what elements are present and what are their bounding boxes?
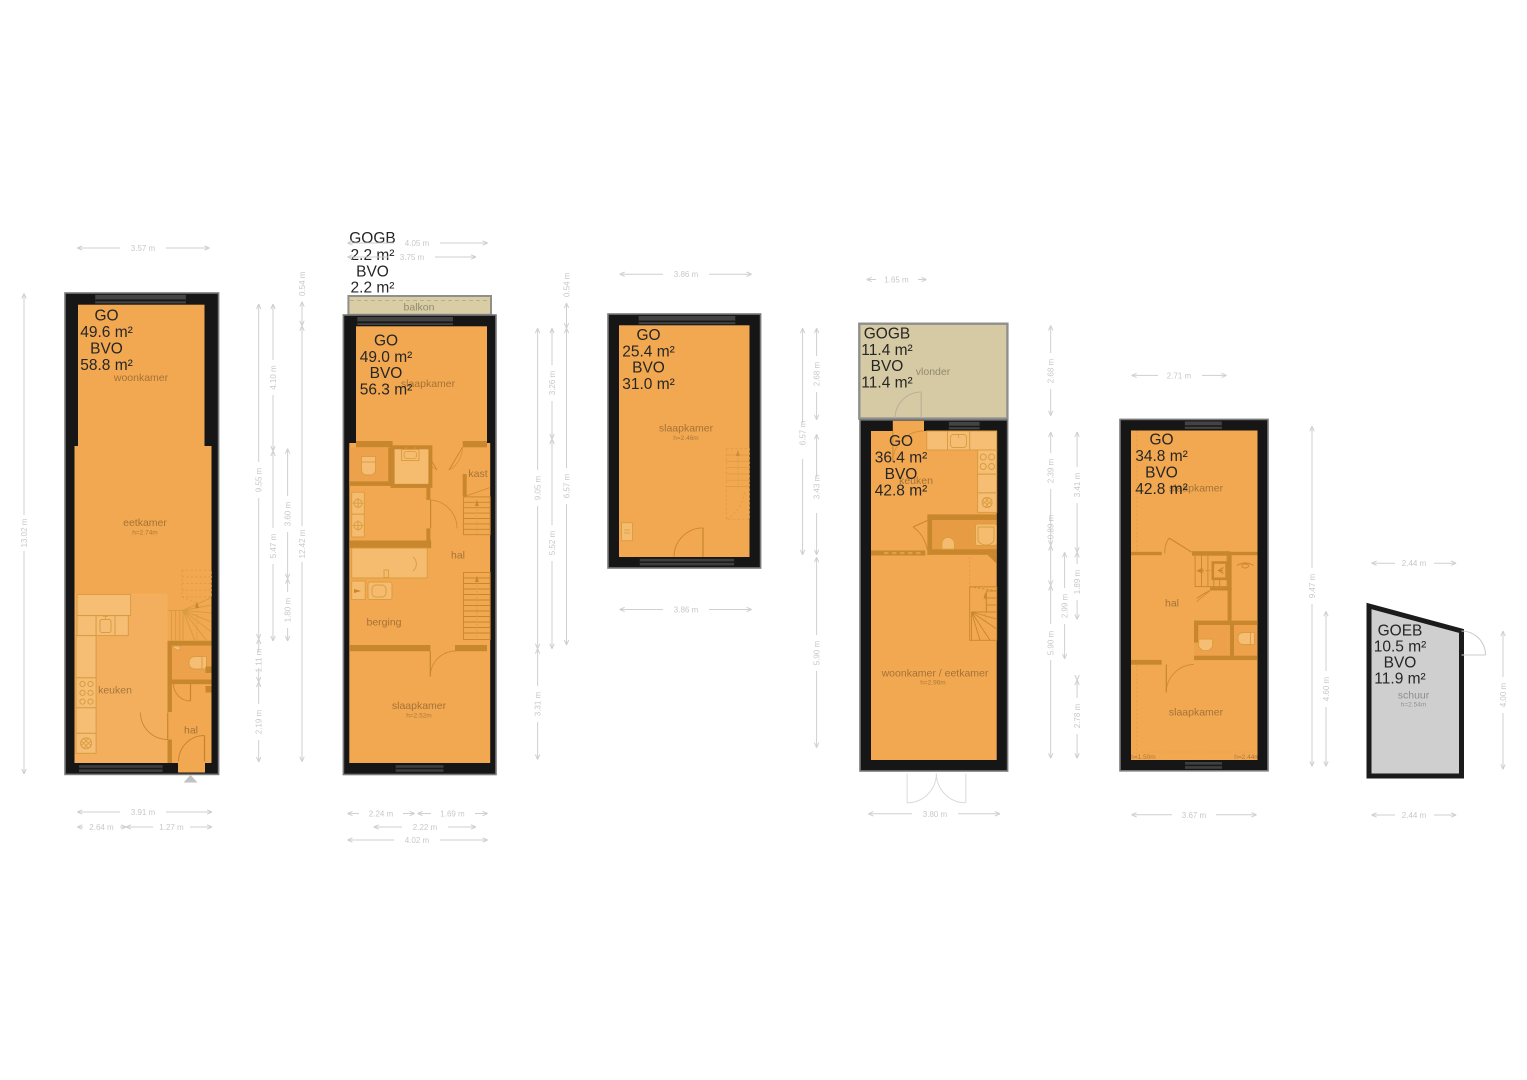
svg-text:0.89 m: 0.89 m	[1047, 514, 1056, 539]
svg-text:3.26 m: 3.26 m	[548, 370, 557, 395]
svg-text:2.24 m: 2.24 m	[369, 810, 394, 819]
svg-text:2.2 m²: 2.2 m²	[351, 280, 395, 297]
svg-text:6.57 m: 6.57 m	[563, 473, 572, 498]
svg-text:2.71 m: 2.71 m	[1167, 371, 1192, 380]
svg-text:eetkamer: eetkamer	[123, 517, 167, 529]
svg-text:h=2.54m: h=2.54m	[1401, 702, 1426, 709]
svg-text:5.90 m: 5.90 m	[1047, 630, 1056, 655]
svg-text:9.55 m: 9.55 m	[255, 467, 264, 492]
svg-text:hal: hal	[184, 725, 198, 737]
svg-text:BVO: BVO	[370, 365, 403, 382]
svg-text:0.54 m: 0.54 m	[563, 272, 572, 297]
svg-text:schuur: schuur	[1398, 690, 1430, 702]
svg-text:1.80 m: 1.80 m	[284, 597, 293, 622]
svg-text:10.5 m²: 10.5 m²	[1374, 639, 1427, 656]
svg-text:BVO: BVO	[1384, 655, 1417, 672]
svg-text:slaapkamer: slaapkamer	[1169, 483, 1224, 495]
svg-text:h=2.96m: h=2.96m	[920, 680, 945, 687]
svg-text:1.27 m: 1.27 m	[159, 823, 184, 832]
svg-text:1.69 m: 1.69 m	[440, 810, 465, 819]
svg-text:3.86 m: 3.86 m	[674, 270, 699, 279]
svg-text:slaapkamer: slaapkamer	[401, 378, 456, 390]
svg-text:12.42 m: 12.42 m	[298, 529, 307, 558]
svg-text:3.67 m: 3.67 m	[1182, 811, 1207, 820]
svg-text:kast: kast	[468, 468, 487, 480]
svg-text:2.19 m: 2.19 m	[255, 709, 264, 734]
svg-text:5.90 m: 5.90 m	[813, 640, 822, 665]
svg-text:2.68 m: 2.68 m	[1047, 358, 1056, 383]
svg-text:3.43 m: 3.43 m	[813, 474, 822, 499]
svg-text:GOGB: GOGB	[349, 230, 396, 247]
svg-text:3.60 m: 3.60 m	[284, 501, 293, 526]
svg-text:36.4 m²: 36.4 m²	[875, 450, 928, 467]
svg-text:berging: berging	[366, 617, 401, 629]
svg-text:25.4 m²: 25.4 m²	[622, 343, 675, 360]
svg-text:2.99 m: 2.99 m	[1061, 593, 1070, 618]
svg-text:GOEB: GOEB	[1378, 623, 1423, 640]
svg-text:BVO: BVO	[632, 360, 665, 377]
svg-text:h=1.50m: h=1.50m	[1130, 754, 1155, 761]
svg-text:2.22 m: 2.22 m	[413, 823, 438, 832]
svg-text:2.68 m: 2.68 m	[813, 361, 822, 386]
svg-text:keuken: keuken	[899, 475, 933, 487]
svg-text:5.52 m: 5.52 m	[548, 530, 557, 555]
svg-text:5.47 m: 5.47 m	[269, 533, 278, 558]
svg-text:49.0 m²: 49.0 m²	[360, 349, 413, 366]
svg-text:11.9 m²: 11.9 m²	[1374, 671, 1425, 688]
svg-text:BVO: BVO	[871, 358, 904, 375]
svg-text:3.86 m: 3.86 m	[674, 606, 699, 615]
svg-text:3.57 m: 3.57 m	[131, 244, 156, 253]
svg-text:13.02 m: 13.02 m	[20, 518, 29, 547]
svg-text:3.31 m: 3.31 m	[534, 691, 543, 716]
svg-text:slaapkamer: slaapkamer	[659, 423, 714, 435]
svg-text:BVO: BVO	[356, 263, 389, 280]
svg-text:0.54 m: 0.54 m	[298, 271, 307, 296]
svg-text:11.4 m²: 11.4 m²	[861, 374, 912, 391]
svg-text:4.60 m: 4.60 m	[1322, 676, 1331, 701]
svg-text:woonkamer / eetkamer: woonkamer / eetkamer	[881, 668, 989, 680]
svg-text:GO: GO	[374, 333, 398, 350]
svg-text:2.44 m: 2.44 m	[1402, 559, 1427, 568]
svg-text:balkon: balkon	[404, 302, 435, 314]
svg-text:hal: hal	[451, 550, 465, 562]
svg-text:GOGB: GOGB	[864, 326, 911, 343]
svg-text:1.89 m: 1.89 m	[1073, 569, 1082, 594]
svg-text:49.6 m²: 49.6 m²	[80, 324, 133, 341]
svg-text:34.8 m²: 34.8 m²	[1135, 448, 1188, 465]
svg-text:31.0 m²: 31.0 m²	[622, 376, 675, 393]
svg-text:2.64 m: 2.64 m	[89, 823, 114, 832]
svg-text:GO: GO	[889, 433, 913, 450]
svg-text:h=2.44m: h=2.44m	[1234, 754, 1259, 761]
svg-text:3.80 m: 3.80 m	[923, 810, 948, 819]
svg-text:6.57 m: 6.57 m	[799, 420, 808, 445]
svg-text:woonkamer: woonkamer	[113, 372, 169, 384]
svg-text:GO: GO	[1149, 432, 1173, 449]
svg-text:1.65 m: 1.65 m	[884, 276, 909, 285]
svg-text:GO: GO	[636, 327, 660, 344]
svg-text:BVO: BVO	[90, 340, 123, 357]
svg-text:h=2.74m: h=2.74m	[132, 530, 157, 537]
svg-text:3.75 m: 3.75 m	[400, 253, 425, 262]
svg-text:h=2.52m: h=2.52m	[406, 713, 431, 720]
svg-text:2.39 m: 2.39 m	[1047, 458, 1056, 483]
svg-text:vlonder: vlonder	[916, 366, 951, 378]
svg-text:2.78 m: 2.78 m	[1073, 703, 1082, 728]
svg-text:3.91 m: 3.91 m	[131, 808, 156, 817]
svg-text:GO: GO	[94, 307, 118, 324]
svg-text:keuken: keuken	[98, 685, 132, 697]
svg-text:hal: hal	[1165, 598, 1179, 610]
svg-text:4.10 m: 4.10 m	[269, 365, 278, 390]
svg-text:11.4 m²: 11.4 m²	[861, 342, 912, 359]
svg-text:4.05 m: 4.05 m	[405, 239, 430, 248]
svg-text:slaapkamer: slaapkamer	[1169, 707, 1224, 719]
svg-text:2.44 m: 2.44 m	[1402, 811, 1427, 820]
svg-text:3.41 m: 3.41 m	[1073, 472, 1082, 497]
svg-text:1.11 m: 1.11 m	[255, 648, 264, 672]
svg-text:h=2.46m: h=2.46m	[673, 435, 698, 442]
svg-text:2.2 m²: 2.2 m²	[351, 247, 395, 264]
svg-text:4.02 m: 4.02 m	[405, 836, 430, 845]
svg-text:9.05 m: 9.05 m	[534, 475, 543, 500]
svg-text:9.47 m: 9.47 m	[1308, 573, 1317, 598]
svg-text:slaapkamer: slaapkamer	[392, 700, 447, 712]
svg-text:4.00 m: 4.00 m	[1499, 682, 1508, 707]
svg-text:BVO: BVO	[1145, 465, 1178, 482]
